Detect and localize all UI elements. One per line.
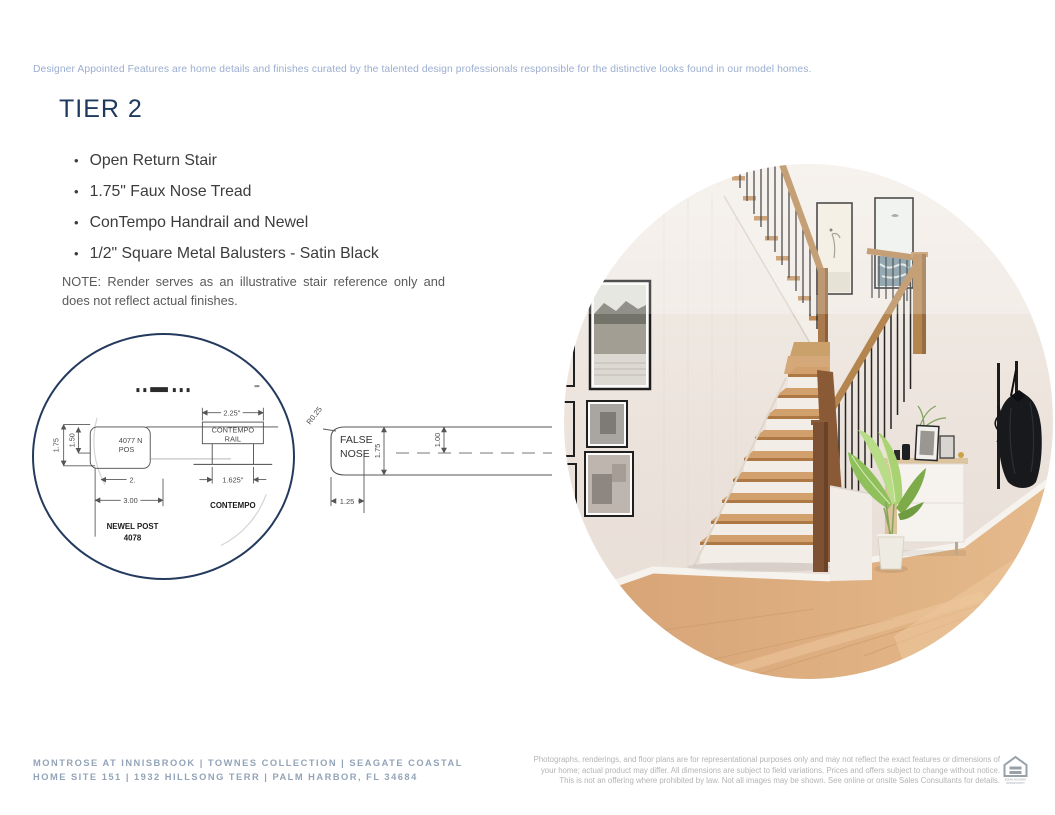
newel-part-number2: POS xyxy=(119,445,135,454)
false-nose-label1: FALSE xyxy=(340,434,373,446)
footer-legal-line3: This is not an offering where prohibited… xyxy=(520,776,1000,787)
feature-item: Open Return Stair xyxy=(74,145,379,176)
feature-list: Open Return Stair 1.75" Faux Nose Tread … xyxy=(74,145,379,269)
newel-caption: NEWEL POST xyxy=(107,522,159,531)
footer-legal-line2: your home; actual product may differ. Al… xyxy=(520,766,1000,777)
feature-item: 1/2" Square Metal Balusters - Satin Blac… xyxy=(74,238,379,269)
feature-item: ConTempo Handrail and Newel xyxy=(74,207,379,238)
false-nose-drawing: R0.25 FALSE NOSE 1.75 1.00 1.25 xyxy=(300,385,562,550)
contempo-caption: CONTEMPO xyxy=(210,501,255,510)
nose-dim-mid: 1.00 xyxy=(433,433,442,448)
page: Designer Appointed Features are home det… xyxy=(0,0,1055,815)
newel-dim-height: 1.75 xyxy=(52,438,61,452)
feature-item: 1.75" Faux Nose Tread xyxy=(74,176,379,207)
newel-dim-clipped: 2. xyxy=(130,476,136,485)
newel-dim-width: 3.00 xyxy=(123,496,137,505)
newel-detail-circle: 1.75 1.50 4077 N POS 2. 3.00 NEWEL POST … xyxy=(32,333,295,580)
note-line1: NOTE: Render serves as an illustrative s… xyxy=(62,272,445,291)
newel-post-plan xyxy=(64,425,278,537)
contempo-rail-label1: CONTEMPO xyxy=(212,425,255,434)
newel-contempo-drawing: 1.75 1.50 4077 N POS 2. 3.00 NEWEL POST … xyxy=(34,335,293,578)
nose-dim-height: 1.75 xyxy=(373,444,382,459)
newel-part-number: 4077 N xyxy=(119,436,143,445)
staircase-photo xyxy=(564,164,1053,679)
newel-caption-number: 4078 xyxy=(124,534,142,543)
newel-dim-inner: 1.50 xyxy=(67,433,76,447)
jacket xyxy=(998,393,1042,488)
eho-text2: OPPORTUNITY xyxy=(1006,781,1025,785)
clipped-text-fragment xyxy=(136,385,259,392)
contempo-rail-label2: RAIL xyxy=(225,434,241,443)
pony-wall xyxy=(830,486,872,581)
footer-legal-line1: Photographs, renderings, and floor plans… xyxy=(520,755,1000,766)
note-line2: does not reflect actual finishes. xyxy=(62,291,445,310)
contempo-rail-profile xyxy=(194,408,273,484)
winder-step xyxy=(790,342,830,356)
footer-community-info: MONTROSE AT INNISBROOK | TOWNES COLLECTI… xyxy=(33,756,463,784)
nose-dim-depth: 1.25 xyxy=(340,497,355,506)
footer-community-line1: MONTROSE AT INNISBROOK | TOWNES COLLECTI… xyxy=(33,756,463,770)
contempo-dim-top: 2.25" xyxy=(223,409,240,418)
equal-housing-logo: EQUAL HOUSING OPPORTUNITY xyxy=(1002,755,1029,786)
note-text: NOTE: Render serves as an illustrative s… xyxy=(62,272,445,310)
nose-radius-label: R0.25 xyxy=(304,405,323,426)
gallery-frame-mid xyxy=(587,401,627,447)
false-nose-label2: NOSE xyxy=(340,448,370,460)
contempo-dim-bottom: 1.625" xyxy=(222,476,243,485)
footer-community-line2: HOME SITE 151 | 1932 HILLSONG TERR | PAL… xyxy=(33,770,463,784)
footer-legal: Photographs, renderings, and floor plans… xyxy=(520,755,1000,787)
page-title: TIER 2 xyxy=(59,95,143,124)
top-disclaimer: Designer Appointed Features are home det… xyxy=(33,64,853,75)
gallery-frame-low xyxy=(585,452,633,516)
light-haze xyxy=(564,164,1053,314)
